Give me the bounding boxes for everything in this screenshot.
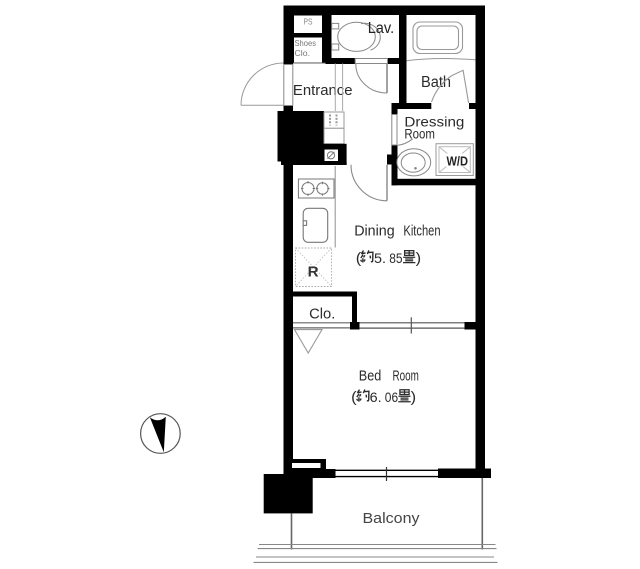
svg-text:85: 85 (389, 251, 402, 266)
svg-text:Kitchen: Kitchen (403, 222, 440, 239)
svg-text:Clo.: Clo. (309, 306, 335, 323)
svg-text:Room: Room (393, 367, 419, 384)
svg-text:Shoes: Shoes (295, 38, 317, 48)
svg-text:R: R (308, 264, 319, 281)
svg-text:06: 06 (385, 390, 398, 405)
svg-text:Room: Room (404, 126, 435, 142)
svg-text:Lav.: Lav. (368, 20, 395, 37)
svg-text:Bath: Bath (421, 74, 451, 91)
svg-text:PS: PS (304, 17, 313, 27)
svg-text:5.: 5. (374, 251, 386, 266)
svg-text:Dining: Dining (354, 222, 395, 239)
svg-text:W/D: W/D (447, 154, 469, 168)
svg-text:): ) (416, 251, 422, 267)
svg-text:Entrance: Entrance (293, 82, 353, 99)
svg-text:): ) (411, 390, 417, 406)
svg-text:Balcony: Balcony (363, 510, 421, 527)
svg-text:Clo.: Clo. (295, 48, 311, 58)
svg-text:(: ( (356, 251, 362, 267)
svg-text:6.: 6. (370, 390, 382, 405)
svg-text:(: ( (351, 390, 357, 406)
svg-text:Bed: Bed (359, 367, 382, 384)
